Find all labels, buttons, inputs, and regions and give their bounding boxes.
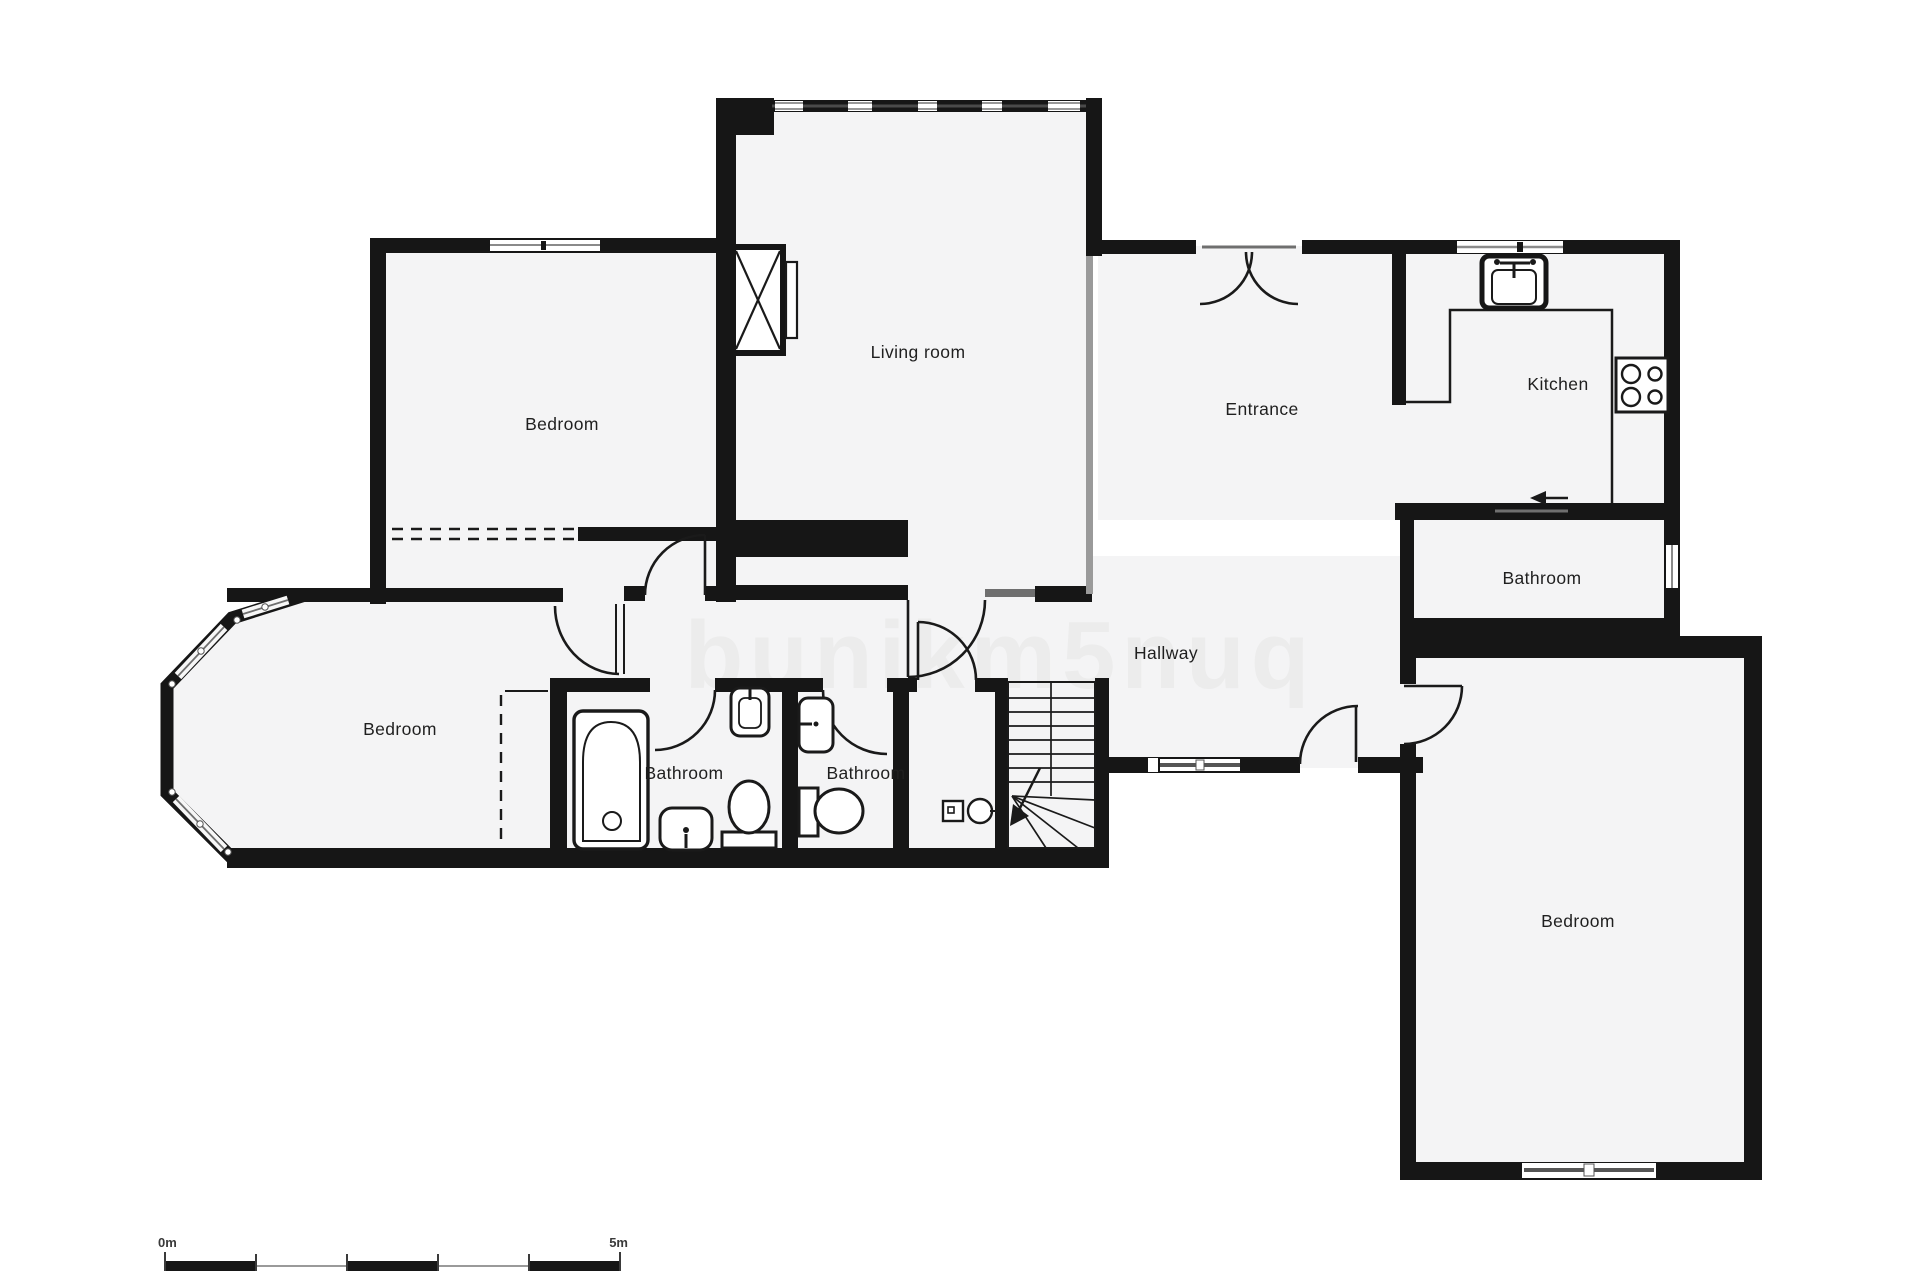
label-entrance: Entrance	[1225, 399, 1298, 419]
label-kitchen: Kitchen	[1527, 374, 1588, 394]
kitchen-sink	[1482, 256, 1546, 308]
label-bedroom-top-left: Bedroom	[525, 414, 599, 434]
label-bedroom-left: Bedroom	[363, 719, 437, 739]
scale-end-label: 5m	[609, 1235, 628, 1250]
label-living-room: Living room	[871, 342, 966, 362]
fireplace-flue	[733, 247, 797, 353]
pedestal-sink	[660, 808, 712, 850]
label-bathroom-1: Bathroom	[644, 763, 723, 783]
label-bathroom-right: Bathroom	[1502, 568, 1581, 588]
scale-bar: 0m 5m	[158, 1235, 628, 1271]
wall-sink-2	[799, 698, 833, 752]
dryer	[968, 799, 992, 823]
label-hallway: Hallway	[1134, 643, 1198, 663]
wall-sink-1	[731, 688, 769, 736]
label-bedroom-bottom-right: Bedroom	[1541, 911, 1615, 931]
glass-partition	[1086, 256, 1093, 594]
scale-start-label: 0m	[158, 1235, 177, 1250]
fixed-panel	[985, 589, 1035, 597]
floor-plan: bunikm5nuq	[0, 0, 1920, 1280]
stove	[1616, 358, 1668, 412]
label-bathroom-2: Bathroom	[826, 763, 905, 783]
bathtub	[574, 711, 648, 849]
toilet-2	[799, 788, 863, 836]
floor-entrance-kitchen	[1098, 246, 1676, 520]
